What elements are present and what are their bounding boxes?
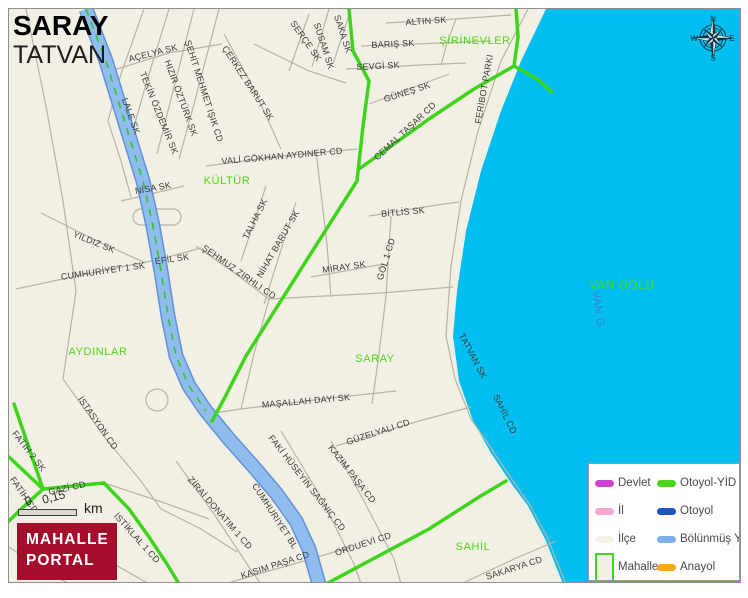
legend-swatch-devlet xyxy=(595,480,614,487)
street-label: CUMHURİYET BL xyxy=(250,481,300,550)
street-label: İSTASYON CD xyxy=(76,395,120,452)
lake-name-alt-label: VAN G xyxy=(590,290,607,327)
legend-item-devlet: Devlet xyxy=(595,469,657,497)
compass-south-label: S xyxy=(710,54,715,63)
legend-item-mahalle: Mahalle xyxy=(595,553,657,581)
map-legend: DevletOtoyol-YİDİlOtoyolİlçeBölünmüş YMa… xyxy=(588,463,740,581)
street-label: CEMAL TAŞAR CD xyxy=(372,100,438,162)
street-label: ORDUEVİ CD xyxy=(334,530,393,558)
street-label: FATİH 2 SK xyxy=(10,429,48,474)
legend-label-anayol: Anayol xyxy=(680,561,715,573)
portal-logo: MAHALLE PORTAL xyxy=(17,523,117,580)
street-label: ALTIN SK xyxy=(405,15,447,28)
street-label: SAHİL CD xyxy=(491,393,519,436)
street-label: SAKA SK xyxy=(332,14,354,55)
legend-label-otoyol-yid: Otoyol-YİD xyxy=(680,477,736,489)
street-label: FERİBOT PARKI xyxy=(473,54,495,125)
town-subtitle: TATVAN xyxy=(13,42,108,68)
legend-item-il: İl xyxy=(595,497,657,525)
logo-line2: PORTAL xyxy=(26,551,117,572)
street-label: EFİL SK xyxy=(154,252,190,267)
street-label: KAZIM PAŞA CD xyxy=(326,443,378,505)
street-label: MAŞALLAH DAYI SK xyxy=(261,392,350,410)
compass-east-label: E xyxy=(729,34,734,43)
legend-item-anayol: Anayol xyxy=(657,553,740,581)
neighborhood-label: AYDINLAR xyxy=(69,346,128,358)
legend-label-mahalle: Mahalle xyxy=(618,561,658,573)
map-title-block: SARAY TATVAN xyxy=(13,11,108,69)
neighborhood-label: ŞİRİNEVLER xyxy=(439,35,510,47)
street-label: SEVGİ SK xyxy=(356,60,400,72)
map-portal-page: { "title": {"main": "SARAY", "sub": "TAT… xyxy=(0,0,748,598)
street-label: VALİ GÖKHAN AYDINER CD xyxy=(221,146,343,167)
street-label: NİHAT BARUT SK xyxy=(255,208,302,279)
legend-label-devlet: Devlet xyxy=(618,477,651,489)
street-label: GÖL 1 CD xyxy=(375,237,397,281)
street-label: İSTİKLAL 1 CD xyxy=(112,511,162,565)
legend-swatch-il xyxy=(595,508,614,515)
legend-swatch-otoyol-yid xyxy=(657,480,676,487)
legend-item-bolunmus-yol: Bölünmüş Y xyxy=(657,525,740,553)
legend-label-il: İl xyxy=(618,505,624,517)
street-label: YILDIZ SK xyxy=(72,229,117,255)
legend-swatch-ilce xyxy=(595,536,614,543)
legend-swatch-bolunmus-yol xyxy=(657,536,676,543)
scale-unit-label: km xyxy=(84,500,103,516)
logo-line1: MAHALLE xyxy=(26,530,117,551)
compass-north-label: N xyxy=(710,15,716,24)
street-label: CUMHURİYET 1 SK xyxy=(60,260,145,282)
street-label: GÜZELYALI CD xyxy=(345,417,411,447)
legend-swatch-mahalle xyxy=(595,553,614,582)
legend-swatch-anayol xyxy=(657,564,676,571)
legend-item-ilce: İlçe xyxy=(595,525,657,553)
street-label: SAKARYA CD xyxy=(485,554,544,582)
street-label: TATVAN SK xyxy=(457,332,489,381)
street-label: ÇERKEZ BARUT SK xyxy=(220,44,276,122)
street-label: LALE SK xyxy=(120,96,142,135)
neighborhood-label: KÜLTÜR xyxy=(204,175,251,187)
neighborhood-label: SAHİL xyxy=(456,541,491,553)
scale-bar xyxy=(18,509,77,516)
street-label: MİRAY SK xyxy=(322,259,367,275)
district-title: SARAY xyxy=(13,11,108,40)
street-label: TALHA SK xyxy=(241,197,270,241)
legend-label-bolunmus-yol: Bölünmüş Y xyxy=(680,533,740,545)
legend-grid: DevletOtoyol-YİDİlOtoyolİlçeBölünmüş YMa… xyxy=(595,469,739,581)
street-label: BİTLİS SK xyxy=(381,205,426,219)
compass-rose-icon: N S E W xyxy=(689,14,737,62)
street-label: NİSA SK xyxy=(134,180,172,196)
street-label: GÜNEŞ SK xyxy=(383,80,432,104)
street-label: BARIŞ SK xyxy=(371,38,415,50)
legend-swatch-otoyol xyxy=(657,508,676,515)
neighborhood-label: SARAY xyxy=(355,353,394,365)
legend-label-ilce: İlçe xyxy=(618,533,636,545)
legend-item-otoyol-yid: Otoyol-YİD xyxy=(657,469,740,497)
legend-item-otoyol: Otoyol xyxy=(657,497,740,525)
legend-label-otoyol: Otoyol xyxy=(680,505,713,517)
street-label: KASIM PAŞA CD xyxy=(239,549,310,581)
compass-west-label: W xyxy=(690,34,698,43)
street-label: ZİRAİ DONATIM 1 CD xyxy=(186,475,255,552)
